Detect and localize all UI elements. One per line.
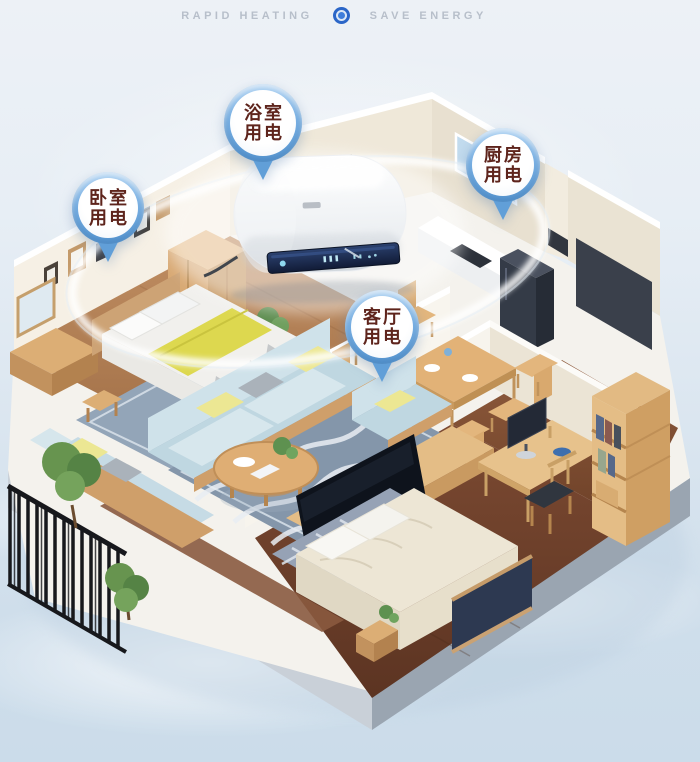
- pin-ball: 卧室 用电: [72, 172, 144, 244]
- callout-pin-kitchen: 厨房 用电: [466, 128, 540, 202]
- callout-bedroom-line1: 卧室: [89, 188, 129, 208]
- pin-ball: 客厅 用电: [345, 290, 419, 364]
- top-banner: RAPID HEATING SAVE ENERGY: [0, 7, 684, 24]
- callout-pin-living: 客厅 用电: [345, 290, 419, 364]
- callout-pin-bedroom: 卧室 用电: [72, 172, 144, 244]
- callout-pin-bathroom: 浴室 用电: [224, 84, 302, 162]
- pin-ball: 浴室 用电: [224, 84, 302, 162]
- callout-bedroom-line2: 用电: [89, 208, 129, 228]
- callout-living-line2: 用电: [363, 327, 403, 347]
- apartment-scene-illustration: [0, 0, 700, 762]
- pin-ball: 厨房 用电: [466, 128, 540, 202]
- promo-image: RAPID HEATING SAVE ENERGY 卧室 用电 浴室 用电 厨房…: [0, 0, 700, 762]
- callout-bathroom-line2: 用电: [244, 123, 284, 143]
- bookshelf: [592, 372, 670, 546]
- callout-bathroom-line1: 浴室: [244, 103, 284, 123]
- banner-right-label: SAVE ENERGY: [370, 10, 487, 22]
- banner-left-label: RAPID HEATING: [181, 10, 312, 22]
- energy-dot-icon: [333, 7, 350, 24]
- callout-kitchen-line2: 用电: [484, 165, 524, 185]
- heater-brand-mark: [303, 202, 321, 209]
- callout-kitchen-line1: 厨房: [484, 145, 524, 165]
- callout-living-line1: 客厅: [363, 307, 403, 327]
